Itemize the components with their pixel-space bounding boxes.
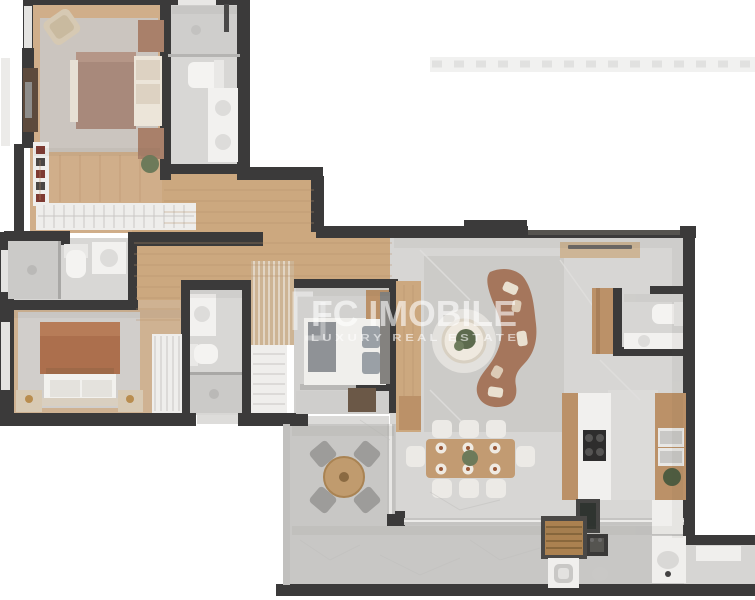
- svg-text:FC IMOBILE: FC IMOBILE: [311, 293, 517, 334]
- svg-text:L U X U R Y R E A L E S T: L U X U R Y R E A L E S T A T E: [311, 332, 516, 344]
